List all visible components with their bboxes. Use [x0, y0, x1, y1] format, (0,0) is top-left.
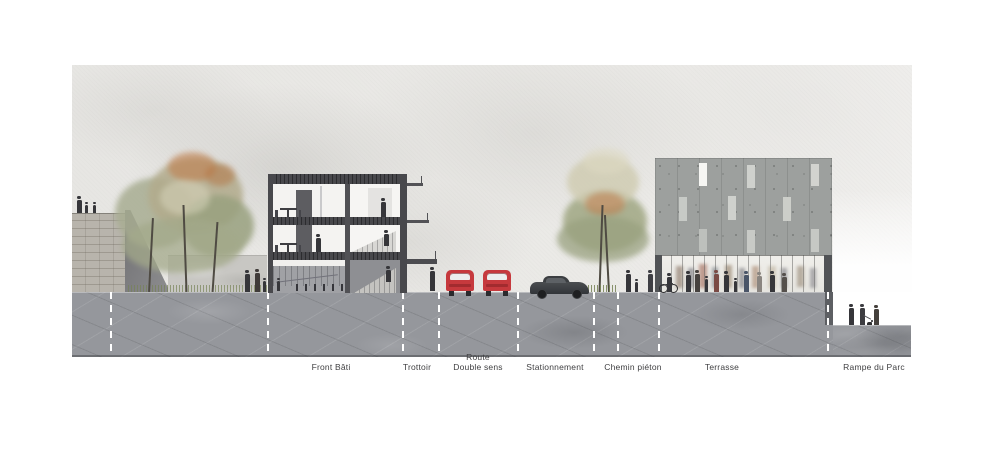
- entrance-canopy: [407, 259, 437, 264]
- tree-canopy-light: [583, 148, 629, 174]
- core-wall: [345, 184, 350, 293]
- person-figure: [849, 308, 854, 325]
- canopy-rail: [435, 251, 436, 259]
- balcony-rail: [421, 176, 422, 183]
- person-figure: [667, 277, 672, 292]
- slot-window: [728, 196, 736, 220]
- person-figure: [386, 270, 391, 282]
- person-figure: [874, 309, 879, 325]
- zone-label-chemin-pieton: Chemin piéton: [604, 362, 661, 372]
- person-figure: [626, 274, 631, 292]
- zone-label-front-bati: Front Bâti: [312, 362, 351, 372]
- garage-wall-texture: [273, 266, 345, 286]
- person-figure: [77, 200, 82, 213]
- person-figure: [714, 274, 719, 292]
- dog-figure: [867, 322, 872, 325]
- dining-set: [275, 205, 301, 217]
- slot-window: [699, 229, 707, 252]
- person-figure: [724, 275, 729, 292]
- slot-window: [811, 229, 819, 252]
- person-figure: [635, 282, 638, 292]
- slot-window: [811, 164, 819, 186]
- exterior-wall: [400, 174, 407, 293]
- person-figure: [686, 275, 691, 292]
- zone-divider-dashed-line: [593, 292, 595, 357]
- floor-slab: [273, 217, 400, 225]
- person-figure: [277, 281, 280, 291]
- roof-slab: [268, 174, 407, 184]
- person-figure: [384, 234, 389, 246]
- zone-label-stationnement: Stationnement: [526, 362, 583, 372]
- floor-slab: [273, 252, 400, 260]
- balcony-slab: [407, 183, 423, 186]
- tree-canopy-autumn: [205, 164, 235, 186]
- person-figure: [744, 275, 749, 292]
- garage-floor-objects: [296, 284, 344, 291]
- person-figure: [695, 274, 700, 292]
- balcony-rail: [427, 213, 428, 220]
- slot-window: [699, 163, 707, 186]
- person-figure: [245, 274, 250, 292]
- person-figure: [93, 205, 96, 213]
- zone-label-terrasse: Terrasse: [705, 362, 739, 372]
- person-figure: [770, 275, 775, 292]
- person-figure: [430, 271, 435, 291]
- zone-label-route-double-sens: Route Double sens: [453, 352, 502, 372]
- dog-lead: [864, 315, 872, 320]
- zone-divider-dashed-line: [517, 292, 519, 357]
- zone-divider-dashed-line: [110, 292, 112, 357]
- ground-section-main: [72, 292, 833, 357]
- zone-label-trottoir: Trottoir: [403, 362, 431, 372]
- person-figure: [757, 276, 762, 292]
- balcony-slab: [407, 220, 429, 223]
- residential-building-section: [268, 174, 407, 293]
- person-figure: [255, 273, 260, 292]
- zone-label-rampe-du-parc: Rampe du Parc: [843, 362, 905, 372]
- slot-window: [747, 165, 755, 188]
- slot-window: [783, 197, 791, 221]
- red-car-front-view: [446, 270, 474, 296]
- interior-panel: [368, 188, 392, 217]
- person-figure: [648, 274, 653, 292]
- zone-divider-dashed-line: [827, 292, 829, 357]
- slot-window: [679, 197, 687, 221]
- zone-divider-dashed-line: [267, 292, 269, 357]
- person-figure: [782, 277, 787, 292]
- person-figure: [316, 238, 321, 252]
- sky-fade-right: [833, 190, 912, 292]
- street-section-drawing: Front Bâti Trottoir Route Double sens St…: [0, 0, 1000, 450]
- zone-divider-dashed-line: [438, 292, 440, 357]
- exterior-wall: [268, 174, 273, 293]
- slot-window: [747, 230, 755, 253]
- person-figure: [263, 281, 266, 292]
- dark-car-side-view: [530, 276, 589, 297]
- tree-canopy-autumn: [585, 192, 625, 216]
- glazing-mullions: [660, 255, 824, 292]
- dining-set: [275, 240, 301, 252]
- building-pier: [824, 255, 832, 292]
- tree-canopy: [122, 218, 242, 273]
- person-figure: [734, 281, 737, 292]
- person-figure: [381, 202, 386, 217]
- person-figure: [705, 279, 708, 292]
- person-figure: [85, 205, 88, 213]
- red-car-front-view: [483, 270, 511, 296]
- zone-divider-dashed-line: [402, 292, 404, 357]
- tree-canopy: [557, 216, 649, 262]
- ground-section-lower-park: [833, 325, 911, 357]
- zone-divider-dashed-line: [617, 292, 619, 357]
- zone-divider-dashed-line: [658, 292, 660, 357]
- interior-partition: [320, 186, 322, 217]
- tree-canopy-light: [160, 180, 210, 215]
